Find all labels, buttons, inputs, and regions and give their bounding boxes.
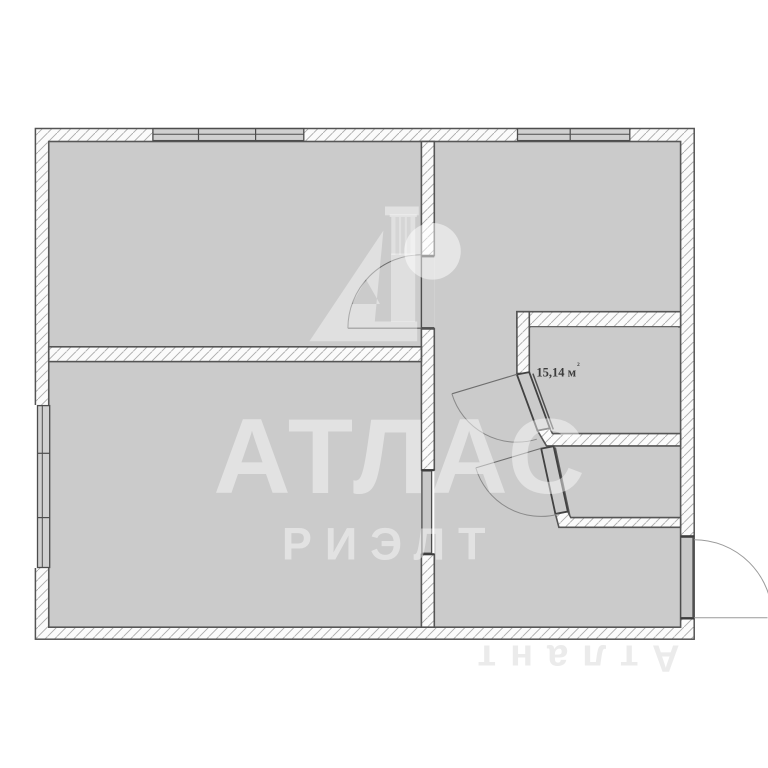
svg-text:Атлант: Атлант (464, 637, 680, 679)
svg-text:15,14 м: 15,14 м (536, 365, 576, 379)
svg-text:2: 2 (577, 362, 580, 368)
svg-text:РИЭЛТ: РИЭЛТ (282, 519, 499, 570)
svg-text:АТЛАС: АТЛАС (213, 396, 587, 516)
